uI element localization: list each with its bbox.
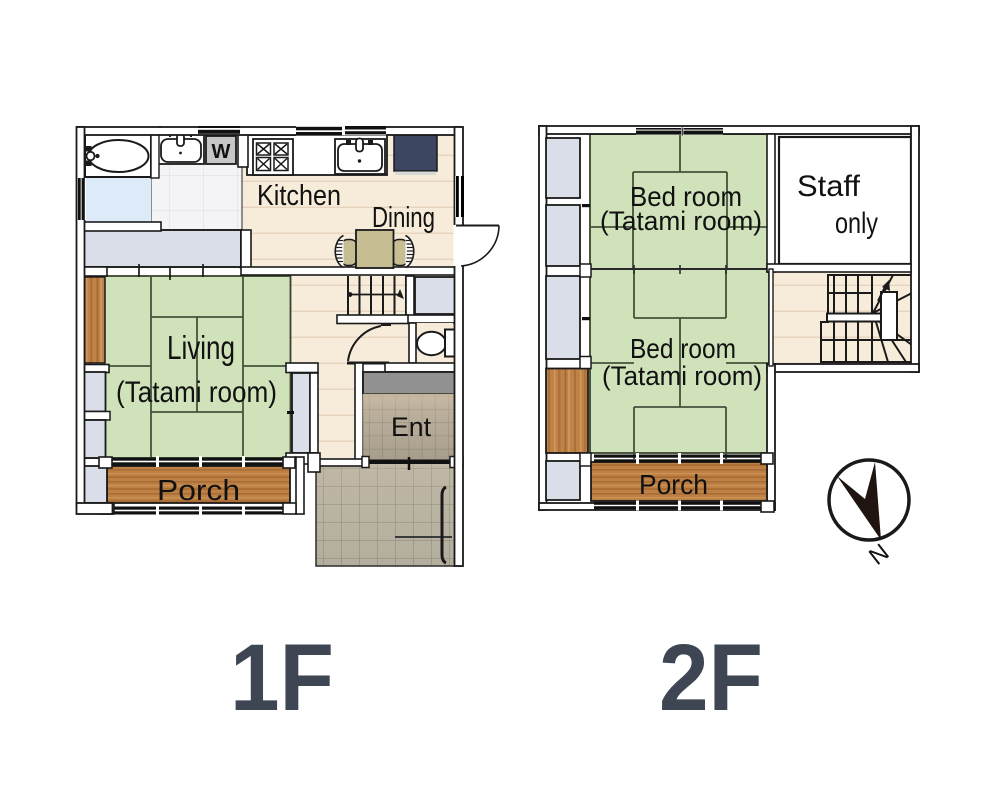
- svg-text:2F: 2F: [659, 625, 763, 731]
- svg-text:Kitchen: Kitchen: [257, 180, 341, 212]
- svg-text:Porch: Porch: [639, 469, 708, 500]
- svg-text:Bed room: Bed room: [630, 333, 736, 364]
- svg-text:1F: 1F: [230, 625, 334, 731]
- svg-text:(Tatami room): (Tatami room): [600, 206, 762, 236]
- svg-text:Living: Living: [167, 329, 235, 366]
- svg-text:Dining: Dining: [372, 202, 435, 234]
- svg-text:only: only: [835, 207, 878, 240]
- svg-text:Staff: Staff: [797, 170, 861, 203]
- svg-text:Porch: Porch: [157, 475, 240, 507]
- svg-text:Ent: Ent: [391, 412, 431, 442]
- svg-text:(Tatami room): (Tatami room): [116, 376, 277, 409]
- svg-text:W: W: [212, 141, 231, 163]
- svg-text:(Tatami room): (Tatami room): [602, 361, 762, 391]
